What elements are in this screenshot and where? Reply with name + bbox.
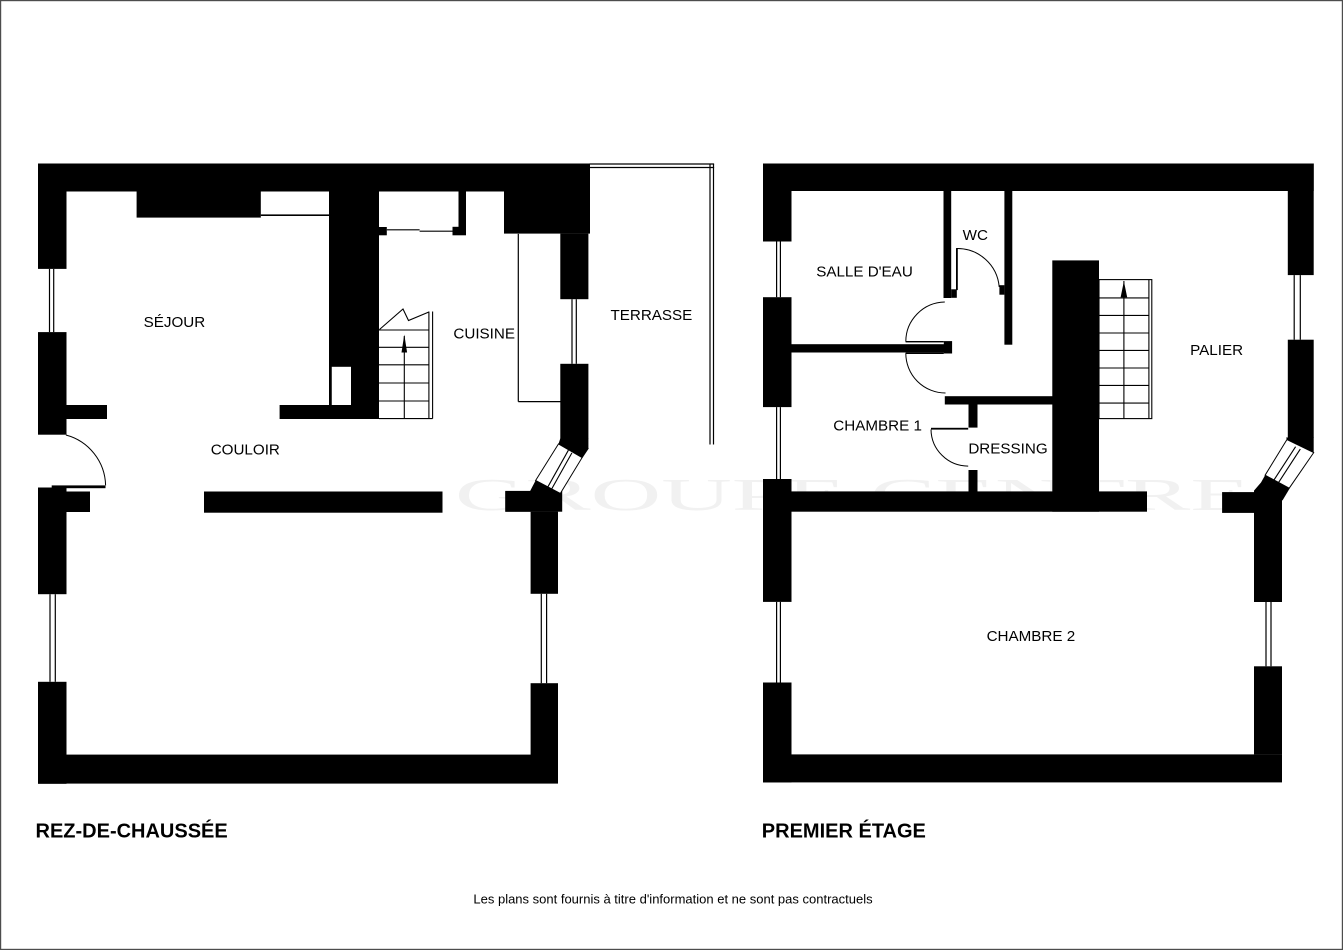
svg-text:CHAMBRE 1: CHAMBRE 1 <box>833 418 922 435</box>
svg-text:SÉJOUR: SÉJOUR <box>144 314 206 331</box>
svg-text:CUISINE: CUISINE <box>453 325 515 342</box>
svg-text:REZ-DE-CHAUSSÉE: REZ-DE-CHAUSSÉE <box>36 820 228 843</box>
svg-text:COULOIR: COULOIR <box>211 442 280 459</box>
svg-text:WC: WC <box>963 227 988 244</box>
svg-text:PREMIER ÉTAGE: PREMIER ÉTAGE <box>762 820 926 843</box>
svg-text:CHAMBRE 2: CHAMBRE 2 <box>987 628 1076 645</box>
svg-text:TERRASSE: TERRASSE <box>610 307 692 324</box>
svg-text:PALIER: PALIER <box>1190 342 1243 359</box>
svg-text:SALLE D'EAU: SALLE D'EAU <box>816 264 913 281</box>
svg-text:Les plans sont fournis à titre: Les plans sont fournis à titre d'informa… <box>473 892 873 907</box>
svg-text:DRESSING: DRESSING <box>968 440 1047 457</box>
